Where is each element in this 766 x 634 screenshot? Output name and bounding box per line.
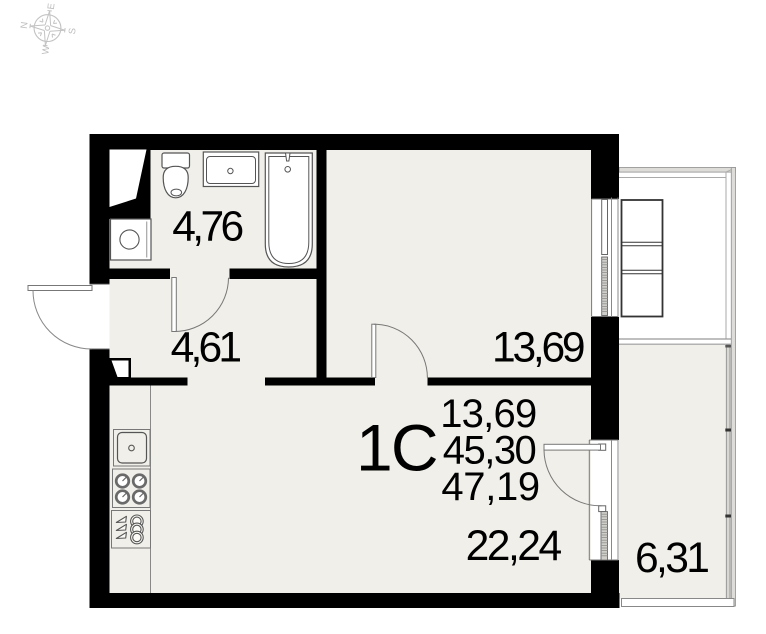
svg-text:N: N — [19, 21, 31, 29]
svg-text:W: W — [40, 45, 52, 55]
svg-text:13,69: 13,69 — [492, 324, 586, 372]
svg-text:S: S — [67, 27, 79, 35]
svg-text:4,76: 4,76 — [172, 203, 244, 251]
svg-text:6,31: 6,31 — [635, 534, 710, 582]
svg-text:47,19: 47,19 — [441, 465, 540, 509]
svg-text:E: E — [46, 3, 58, 11]
svg-text:22,24: 22,24 — [466, 522, 563, 570]
svg-text:4,61: 4,61 — [171, 324, 243, 372]
svg-text:1С: 1С — [356, 410, 439, 484]
